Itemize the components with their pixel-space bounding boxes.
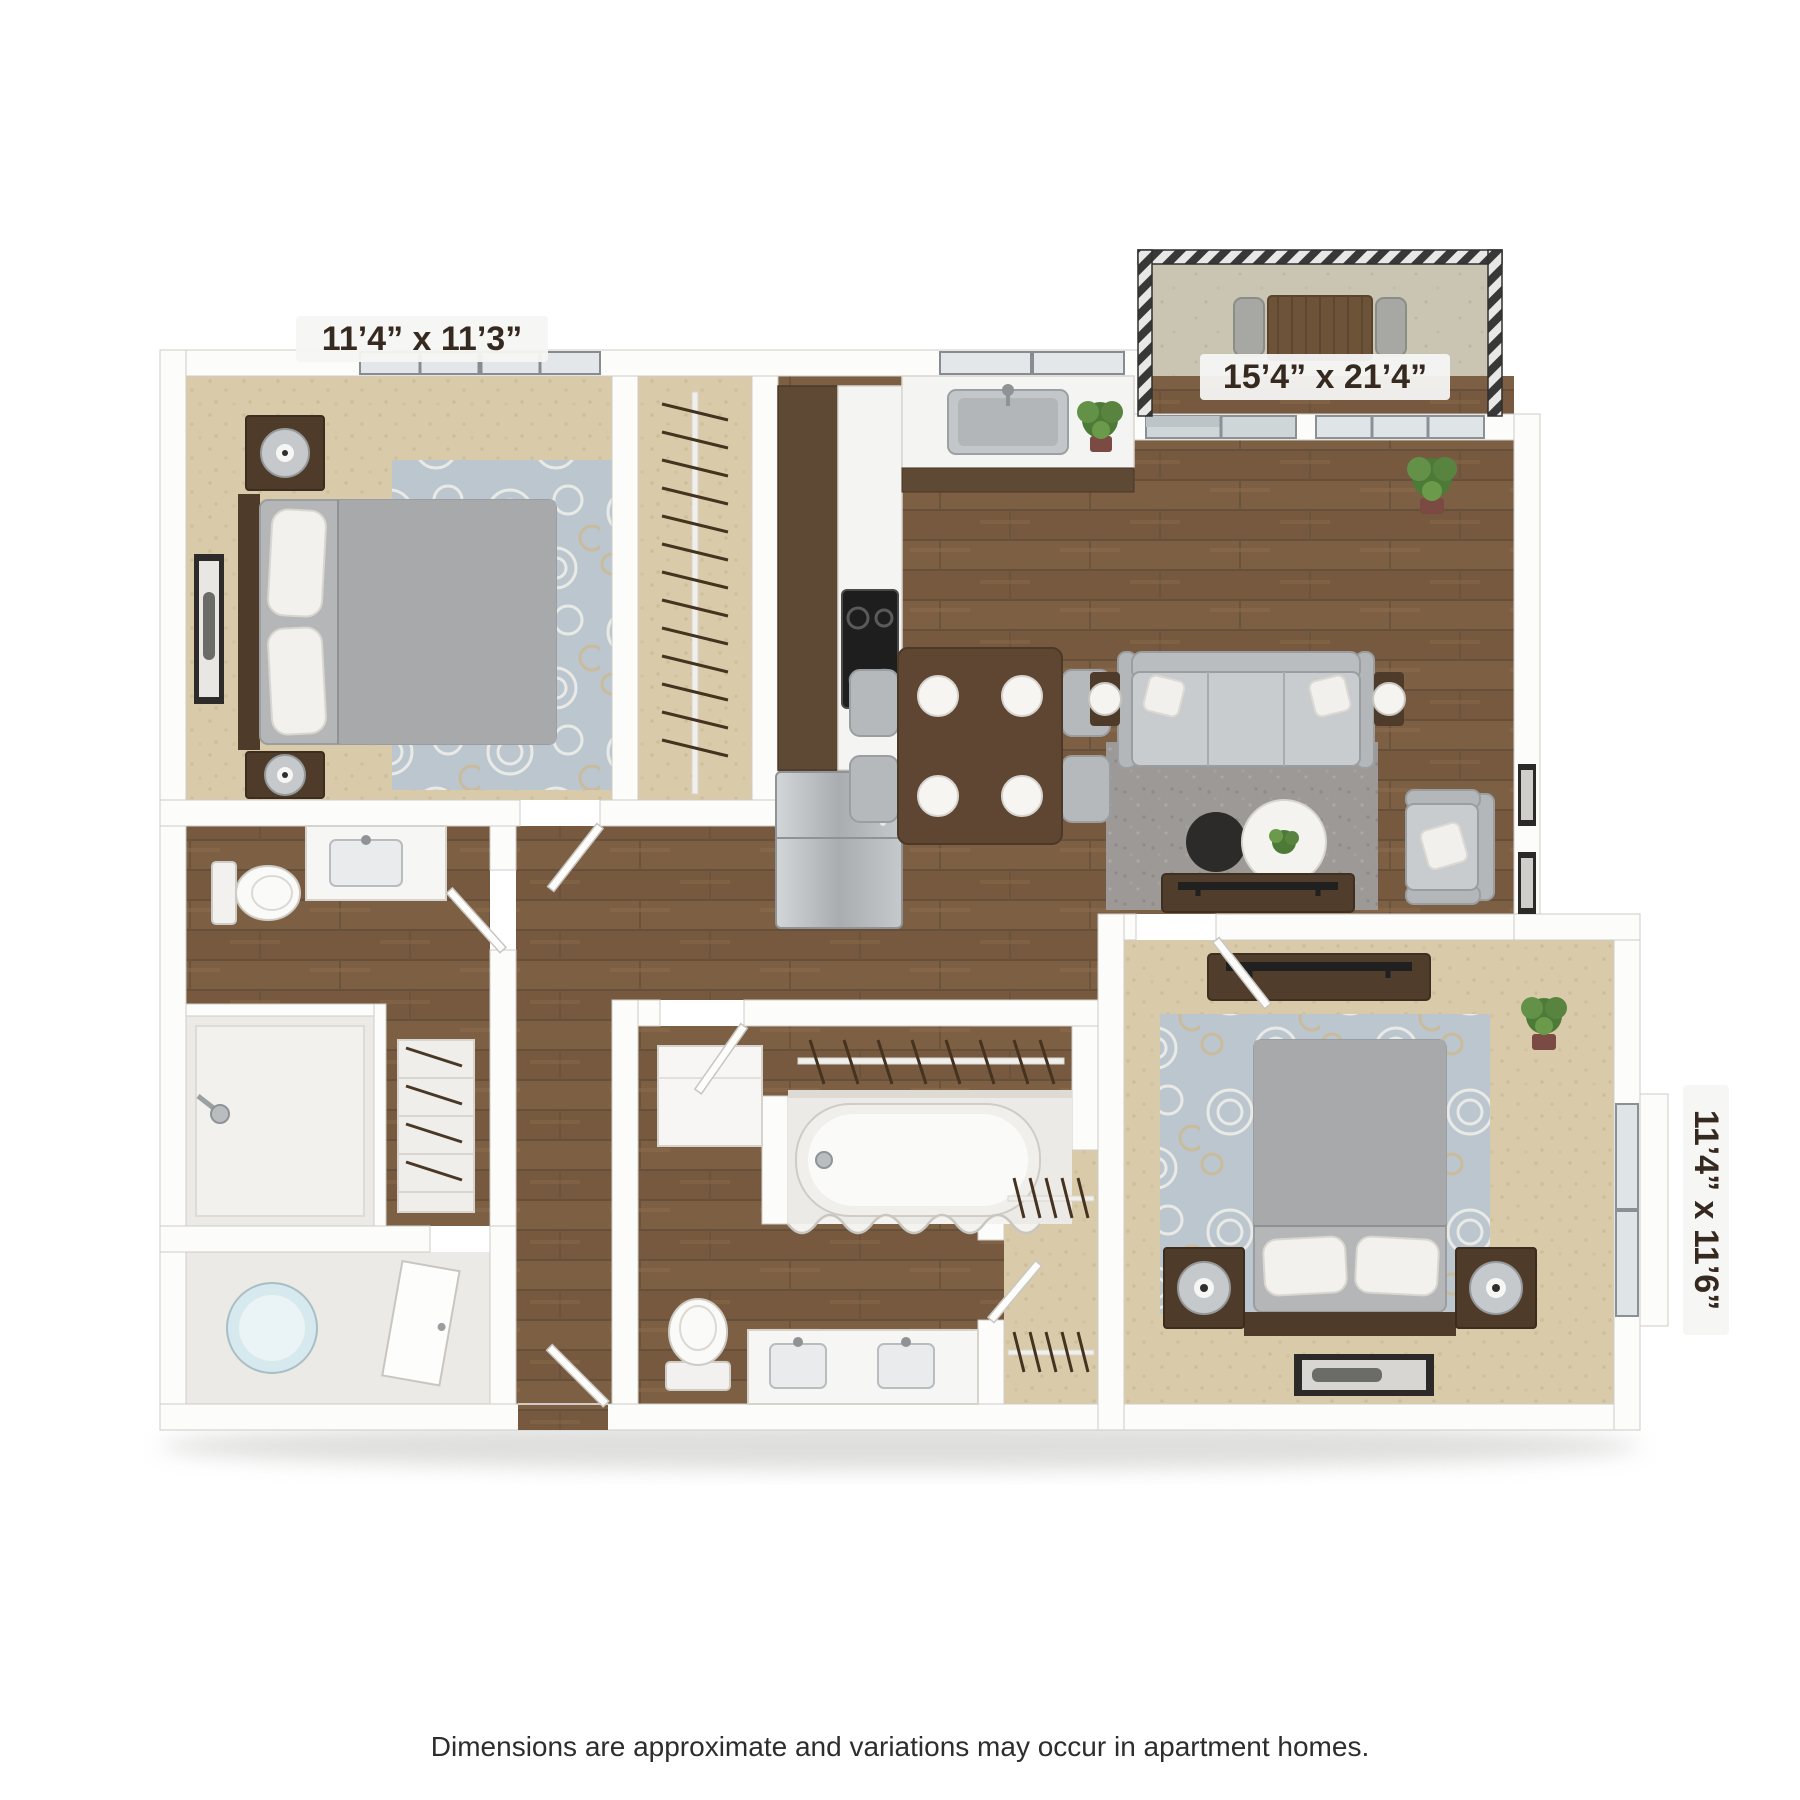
kitchen-cabinet-run [778, 386, 838, 770]
kitchen-window [940, 352, 1124, 374]
bath1-faucet [361, 835, 371, 845]
bed2-pillow-left [1263, 1236, 1348, 1296]
bathtub-part [808, 1114, 1028, 1206]
bath1-vanity-part [330, 840, 402, 886]
coffee-table-black [1186, 812, 1246, 872]
dining-chair-br [1062, 756, 1110, 822]
coffee-table-plant-part [1285, 831, 1299, 845]
bedroom-2-part [1200, 1284, 1208, 1292]
wall-frames-part [1521, 770, 1533, 820]
sofa-pillow-left [1142, 674, 1186, 718]
bath1-toilet-part [236, 866, 300, 920]
utility-room-part [239, 1295, 305, 1361]
wall-bath1-south-a [160, 1226, 430, 1252]
wall-bath2-north-a [638, 1000, 660, 1026]
floor-art-frame-part [1312, 1368, 1382, 1382]
living-plant-part [1407, 457, 1431, 481]
sofa [1118, 652, 1374, 768]
bath2-toilet-part [666, 1362, 730, 1390]
wall-bedroom1-south-a [160, 800, 520, 826]
double-vanity-part [878, 1344, 934, 1388]
bedroom-1-part [282, 450, 288, 456]
bedroom2-plant-part [1532, 1034, 1556, 1050]
wall-living-bedroom2-b [1216, 914, 1514, 940]
wall-bath1-east-a [490, 826, 516, 870]
kitchen-sink [948, 384, 1068, 454]
bedroom2-plant-part [1535, 1017, 1553, 1035]
bed2-comforter [1254, 1040, 1446, 1226]
living-room-window [1316, 416, 1484, 438]
disclaimer-text: Dimensions are approximate and variation… [431, 1731, 1369, 1762]
counter-plant-part [1101, 401, 1123, 423]
bedroom2-plant-part [1545, 997, 1567, 1019]
balcony-railing-top [1138, 250, 1502, 264]
bedroom-1-label: 11’4” x 11’3” [296, 316, 548, 362]
tub-ledge [788, 1090, 1072, 1098]
wall-left [160, 350, 186, 1430]
dining-chair-tl [850, 670, 898, 736]
place-setting [1002, 676, 1042, 716]
balcony-chair-left [1234, 298, 1264, 356]
bath1-toilet [212, 862, 300, 924]
dining-table [898, 648, 1062, 844]
living-area-dimensions-text: 15’4” x 21’4” [1223, 358, 1427, 396]
place-setting [918, 776, 958, 816]
balcony-railing-left [1138, 250, 1152, 416]
shower [196, 1026, 364, 1216]
floor-plan-page: 11’4” x 11’3” 15’4” x 21’4” 11’4” x 11’6… [0, 0, 1800, 1800]
dining-chair-bl [850, 756, 898, 822]
place-setting [1002, 776, 1042, 816]
bath2-toilet-part [669, 1299, 727, 1365]
wall-bottom [160, 1404, 1640, 1430]
bath1-vanity [306, 826, 446, 900]
living-tv-console [1162, 874, 1354, 912]
closet-rod [692, 392, 698, 794]
wall-art-frame [194, 554, 224, 704]
wall-bedroom2-window-bump [1640, 1094, 1668, 1326]
wall-bedroom2-west [1098, 914, 1124, 1430]
bath2-linen-rod-part [798, 1058, 1064, 1064]
tub-faucet [816, 1152, 832, 1168]
wall-shower-top [186, 1004, 386, 1016]
wall-tub-east [1072, 1026, 1098, 1150]
armchair [1406, 790, 1494, 904]
front-door-opening [518, 1404, 608, 1430]
linen-shelves [398, 1040, 474, 1212]
bedroom-1-dimensions-text: 11’4” x 11’3” [322, 320, 522, 358]
wall-closet-west [612, 376, 638, 800]
balcony-slider-door [1146, 416, 1296, 438]
side-lamp-right [1373, 683, 1405, 715]
bath2-toilet [666, 1299, 730, 1390]
floor-art-frame [1294, 1354, 1434, 1396]
balcony-railing-right [1488, 250, 1502, 416]
shower-head [211, 1105, 229, 1123]
living-room-window-part [1316, 416, 1484, 438]
living-tv-console-part [1178, 882, 1338, 890]
sofa-pillow-right [1308, 674, 1352, 718]
vanity-faucet-right [901, 1337, 911, 1347]
living-plant-part [1422, 481, 1442, 501]
bedroom-2-dimensions-text: 11’4” x 11’6” [1687, 1110, 1725, 1310]
double-vanity [748, 1330, 978, 1404]
balcony-slider-door-part [1146, 416, 1221, 427]
double-vanity-part [770, 1344, 826, 1388]
bedroom-2-label: 11’4” x 11’6” [1683, 1085, 1729, 1335]
bed1-pillow-bottom [267, 627, 326, 736]
wall-bath2-west [612, 1000, 638, 1404]
bathtub [788, 1098, 1072, 1233]
wall-tub-west [762, 1096, 788, 1224]
wall-shower-side [374, 1004, 386, 1226]
wall-bedroom1-south-b [600, 800, 778, 826]
kitchen-cabinet-face [902, 468, 1134, 492]
bed1-headboard [238, 494, 260, 750]
bath1-toilet-part [212, 862, 236, 924]
counter-plant-part [1092, 421, 1110, 439]
wall-corridor-west [490, 1226, 516, 1404]
bedroom-2-window [1616, 1104, 1638, 1316]
bedroom2-plant-part [1521, 997, 1543, 1019]
bedroom2-tv-console-part [1226, 962, 1412, 971]
wall-closet-east [752, 376, 778, 800]
wall-right-step [1514, 914, 1640, 940]
bed1-pillow-top [267, 509, 326, 618]
bed2-pillow-right [1355, 1236, 1440, 1296]
living-plant-part [1433, 457, 1457, 481]
coffee-table-plant-part [1269, 829, 1283, 843]
vanity-faucet-left [793, 1337, 803, 1347]
side-lamp-left [1089, 683, 1121, 715]
wall-art-frame-part [203, 592, 215, 660]
bedroom-2-part [1492, 1284, 1500, 1292]
stacked-laundry-unit [658, 1046, 762, 1146]
floor-plan-rendering: 11’4” x 11’3” 15’4” x 21’4” 11’4” x 11’6… [0, 0, 1800, 1800]
bed1-comforter [338, 500, 556, 744]
living-tv-console-part [1162, 874, 1354, 912]
wall-closet2-west-b [978, 1320, 1004, 1404]
counter-plant-part [1077, 401, 1099, 423]
living-area-label: 15’4” x 21’4” [1200, 354, 1450, 400]
balcony-chair-right [1376, 298, 1406, 356]
bedroom-1-part [282, 772, 288, 778]
wall-bath1-east-b [490, 950, 516, 1226]
wall-living-bedroom2-a [1124, 914, 1136, 940]
wall-bath2-north-b [744, 1000, 1098, 1026]
place-setting [918, 676, 958, 716]
wall-frames-part [1521, 858, 1533, 908]
bed2-headboard [1244, 1312, 1456, 1336]
